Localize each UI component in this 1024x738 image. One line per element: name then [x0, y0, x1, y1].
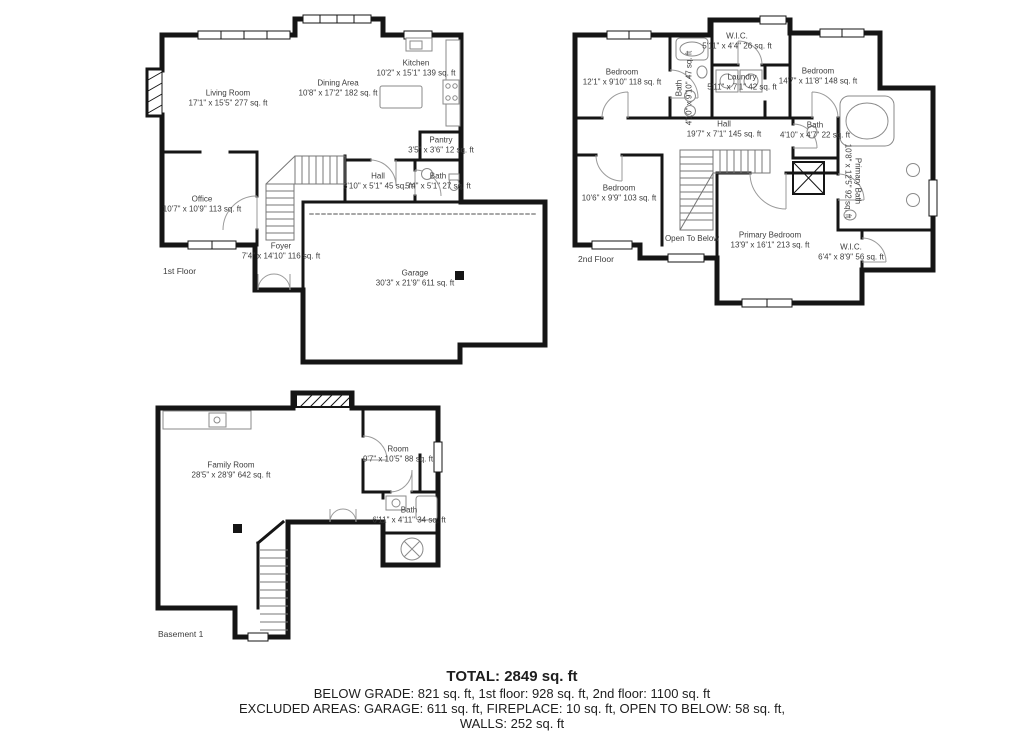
- first-floor-staircase: [266, 156, 345, 240]
- room-label-office: Office 10'7" x 10'9" 113 sq. ft: [163, 195, 241, 216]
- dining-table: [380, 86, 422, 108]
- bath-door-arc: [390, 470, 412, 492]
- room-label-primary-bath: Primary Bath 10'8" x 12'5" 92 sq. ft: [842, 144, 863, 219]
- sink-icon: [907, 194, 920, 207]
- room-label-hall-2: Hall 19'7" x 7'1" 145 sq. ft: [687, 120, 762, 141]
- room-label-open-to-below: Open To Below: [665, 234, 719, 244]
- summary-total: TOTAL: 2849 sq. ft: [0, 668, 1024, 685]
- stove-icon: [443, 80, 459, 104]
- room-label-bath-1: Bath 5'4" x 5'1" 27 sq. ft: [405, 172, 471, 193]
- bedroom-door-arc: [596, 155, 622, 181]
- room-label-room: Room 9'7" x 10'5" 88 sq. ft: [363, 445, 433, 466]
- floor-plan-drawing: [0, 0, 1024, 738]
- primary-bedroom-door-arc: [750, 173, 786, 209]
- window: [929, 180, 937, 216]
- summary-excluded-line: EXCLUDED AREAS: GARAGE: 611 sq. ft, FIRE…: [0, 701, 1024, 716]
- room-label-hall-1: Hall 8'10" x 5'1" 45 sq. ft: [343, 172, 413, 193]
- second-floor-staircase: [680, 150, 770, 230]
- window: [592, 241, 632, 249]
- bedroom-door-arc: [812, 92, 838, 118]
- summary-block: TOTAL: 2849 sq. ft BELOW GRADE: 821 sq. …: [0, 668, 1024, 731]
- room-label-family-room: Family Room 28'5" x 28'9" 642 sq. ft: [191, 461, 270, 482]
- fireplace-marker: [455, 271, 464, 280]
- summary-walls-line: WALLS: 252 sq. ft: [0, 716, 1024, 731]
- room-label-bedroom-2: Bedroom 14'7" x 11'8" 148 sq. ft: [779, 67, 857, 88]
- second-floor-windows: [592, 16, 937, 307]
- sink-icon: [907, 164, 920, 177]
- floor-label-1st-floor: 1st Floor: [163, 266, 196, 276]
- summary-areas-line: BELOW GRADE: 821 sq. ft, 1st floor: 928 …: [0, 686, 1024, 701]
- room-label-bedroom-1: Bedroom 12'1" x 9'10" 118 sq. ft: [583, 68, 661, 89]
- bedroom-door-arc: [602, 92, 628, 118]
- window: [434, 442, 442, 472]
- floor-plan-page: Living Room 17'1" x 15'5" 277 sq. ft Din…: [0, 0, 1024, 738]
- room-label-foyer: Foyer 7'4" x 14'10" 116 sq. ft: [242, 242, 320, 263]
- room-label-dining-area: Dining Area 10'8" x 17'2" 182 sq. ft: [298, 79, 377, 100]
- room-label-bath-small: Bath 4'10" x 4'7" 22 sq. ft: [780, 121, 850, 142]
- room-label-living-room: Living Room 17'1" x 15'5" 277 sq. ft: [188, 89, 267, 110]
- bar-counter: [163, 411, 251, 429]
- floor-label-basement: Basement 1: [158, 629, 203, 639]
- window: [668, 254, 704, 262]
- room-label-pantry: Pantry 3'5" x 3'6" 12 sq. ft: [408, 136, 474, 157]
- room-label-garage: Garage 30'3" x 21'9" 611 sq. ft: [376, 269, 454, 290]
- chimney-hatch: [296, 394, 350, 407]
- room-label-bath-basement: Bath 6'11" x 4'11" 34 sq. ft: [372, 506, 445, 527]
- fireplace-marker: [233, 524, 242, 533]
- room-label-kitchen: Kitchen 10'2" x 15'1" 139 sq. ft: [376, 59, 455, 80]
- basement-staircase: [260, 550, 288, 630]
- room-label-primary-bedroom: Primary Bedroom 13'9" x 16'1" 213 sq. ft: [730, 231, 809, 252]
- room-label-laundry: Laundry 5'11" x 7'1" 42 sq. ft: [707, 73, 777, 94]
- room-label-wic-bottom: W.I.C. 6'4" x 8'9" 56 sq. ft: [818, 243, 884, 264]
- shower-icon: [401, 538, 423, 560]
- window: [248, 633, 268, 641]
- toilet-icon: [697, 66, 707, 78]
- room-label-wic-top: W.I.C. 5'11" x 4'4" 26 sq. ft: [702, 32, 772, 53]
- fireplace-hatch: [148, 70, 162, 115]
- floor-label-2nd-floor: 2nd Floor: [578, 254, 614, 264]
- window: [760, 16, 786, 24]
- room-label-bath-vertical: Bath 4'10" x 9'10" 47 sq. ft: [675, 51, 696, 126]
- chase-x-box: [793, 162, 824, 194]
- room-label-bedroom-3: Bedroom 10'6" x 9'9" 103 sq. ft: [582, 184, 657, 205]
- basement-fixtures: [163, 411, 437, 560]
